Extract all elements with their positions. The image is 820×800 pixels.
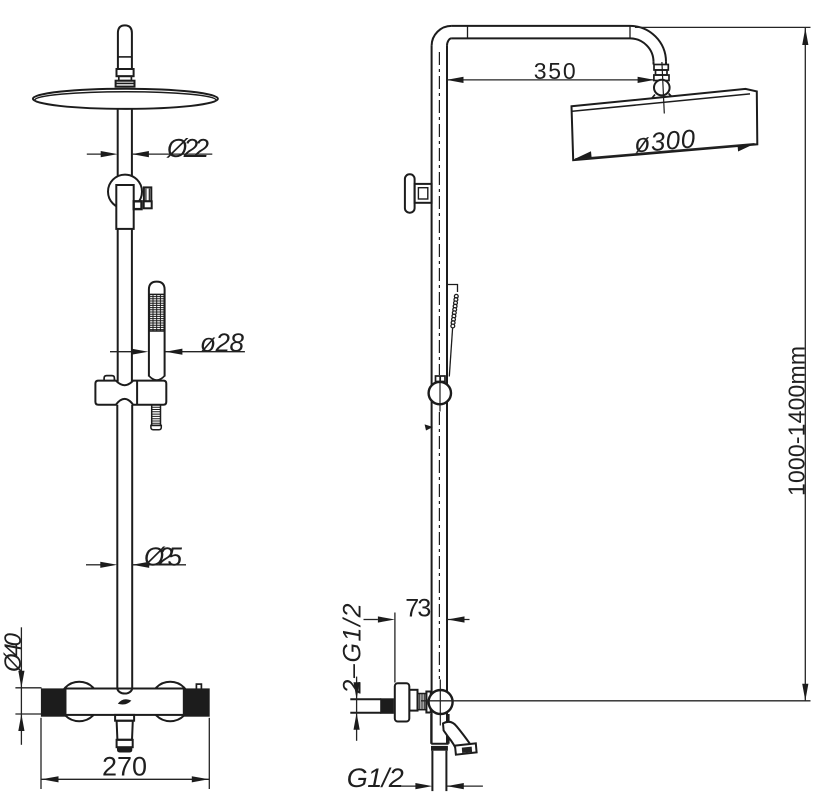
svg-text:Ø25: Ø25 (143, 542, 183, 572)
svg-text:270: 270 (102, 752, 147, 782)
svg-text:Ø22: Ø22 (166, 133, 210, 163)
svg-text:1000-1400mm: 1000-1400mm (784, 346, 810, 496)
svg-text:73: 73 (405, 595, 431, 623)
svg-text:2–G1/2: 2–G1/2 (339, 603, 367, 694)
svg-text:ø28: ø28 (200, 328, 245, 358)
svg-text:ø300: ø300 (633, 123, 697, 158)
svg-text:Ø40: Ø40 (0, 632, 27, 673)
svg-text:350: 350 (534, 58, 576, 84)
svg-text:G1/2: G1/2 (347, 763, 404, 793)
